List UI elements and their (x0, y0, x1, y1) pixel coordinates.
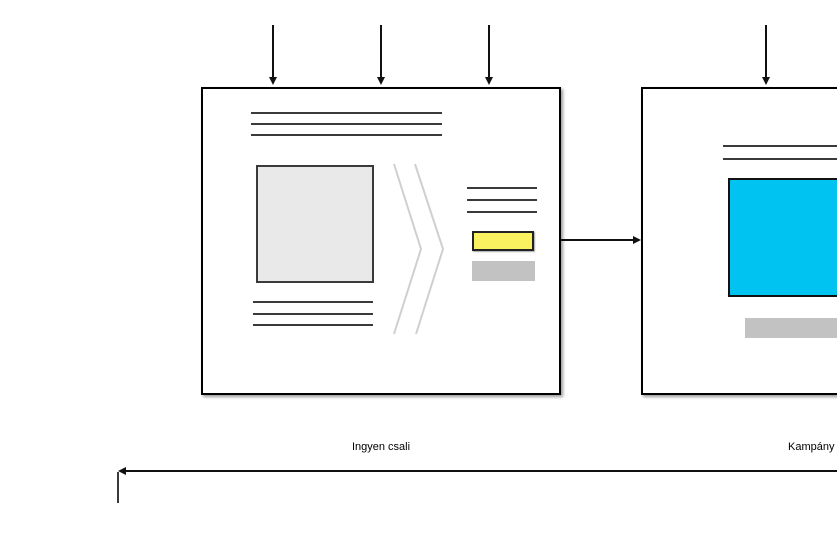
image-placeholder (256, 165, 374, 283)
text-line (253, 313, 373, 315)
secondary-button-placeholder (472, 261, 535, 281)
inbound-arrow-4 (765, 25, 767, 77)
funnel-diagram-canvas: Ingyen csali Kampány o (0, 0, 837, 535)
text-line (467, 187, 537, 189)
inbound-arrow-2 (380, 25, 382, 77)
text-line (723, 158, 837, 160)
text-line (467, 199, 537, 201)
campaign-page-wireframe (641, 87, 837, 395)
feedback-arrow-head-icon (114, 467, 126, 475)
text-line (723, 145, 837, 147)
lead-magnet-label: Ingyen csali (321, 441, 441, 453)
text-line (253, 324, 373, 326)
feedback-arrow-line (122, 470, 837, 472)
lead-magnet-page-wireframe (201, 87, 561, 395)
text-line (251, 134, 442, 136)
campaign-page-label: Kampány o (788, 441, 837, 453)
text-line (251, 112, 442, 114)
text-line (251, 123, 442, 125)
flow-arrow-line (561, 239, 633, 241)
hero-image-placeholder (728, 178, 837, 297)
inbound-arrow-1 (272, 25, 274, 77)
cta-button-placeholder (472, 231, 534, 251)
text-line (467, 211, 537, 213)
double-chevron-icon (389, 160, 449, 338)
inbound-arrow-3 (488, 25, 490, 77)
text-line (253, 301, 373, 303)
feedback-arrow-stub (117, 472, 119, 503)
button-placeholder (745, 318, 837, 338)
